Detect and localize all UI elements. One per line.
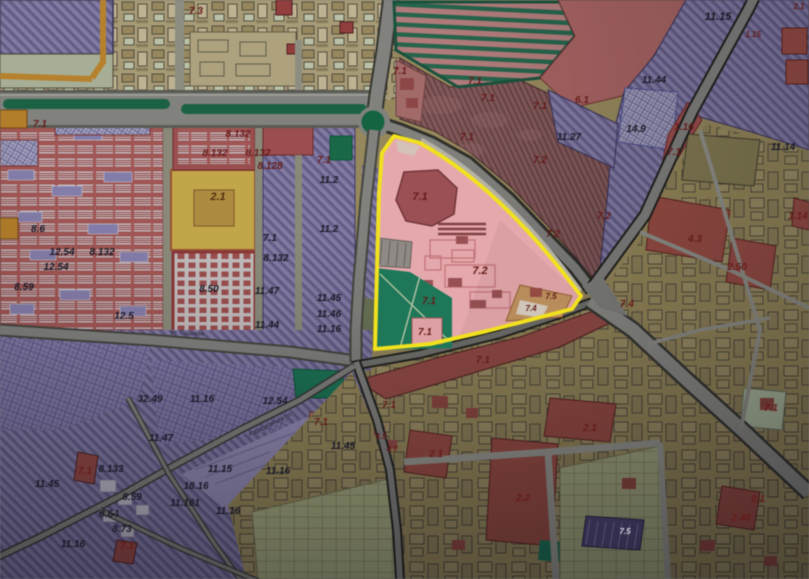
svg-text:11.161: 11.161 — [170, 498, 200, 509]
svg-text:7.1: 7.1 — [314, 417, 328, 428]
svg-text:7.1: 7.1 — [476, 355, 490, 366]
svg-text:7.2: 7.2 — [597, 211, 611, 222]
svg-text:11.45: 11.45 — [317, 293, 342, 304]
svg-text:2.2: 2.2 — [515, 493, 530, 504]
svg-text:7.1: 7.1 — [764, 403, 778, 414]
svg-text:7.2: 7.2 — [546, 229, 560, 240]
svg-text:8.50: 8.50 — [199, 284, 219, 295]
svg-text:7.1: 7.1 — [418, 327, 432, 338]
svg-text:12.54: 12.54 — [262, 396, 287, 407]
svg-text:18.16: 18.16 — [183, 481, 208, 492]
svg-text:11.44: 11.44 — [255, 320, 280, 331]
svg-text:2.1: 2.1 — [428, 449, 443, 460]
svg-text:11.46: 11.46 — [317, 309, 342, 320]
svg-text:12.54: 12.54 — [49, 247, 74, 258]
svg-text:14.9: 14.9 — [626, 124, 646, 135]
svg-text:8.132: 8.132 — [245, 148, 270, 159]
svg-text:7.2: 7.2 — [533, 155, 547, 166]
svg-text:8.132: 8.132 — [225, 129, 250, 140]
svg-text:2.1: 2.1 — [792, 2, 805, 11]
svg-text:8.59: 8.59 — [122, 492, 142, 503]
svg-text:7.1: 7.1 — [263, 233, 277, 244]
svg-text:4.3: 4.3 — [687, 234, 702, 245]
svg-text:7.1: 7.1 — [422, 296, 436, 307]
svg-text:32.49: 32.49 — [137, 394, 162, 405]
svg-text:2.1: 2.1 — [750, 494, 765, 505]
svg-text:7.1: 7.1 — [460, 132, 474, 143]
svg-text:1.14: 1.14 — [788, 211, 808, 222]
svg-text:11.16: 11.16 — [317, 324, 342, 335]
svg-text:2.50: 2.50 — [726, 262, 747, 273]
svg-text:2.1: 2.1 — [209, 191, 225, 203]
svg-text:7.1: 7.1 — [78, 466, 92, 477]
svg-text:4.7: 4.7 — [385, 445, 398, 454]
svg-text:8.132: 8.132 — [263, 253, 288, 264]
svg-text:2.1: 2.1 — [582, 423, 597, 434]
svg-text:7.1: 7.1 — [33, 119, 47, 130]
svg-text:8.128: 8.128 — [257, 161, 282, 172]
svg-text:2.40: 2.40 — [730, 513, 751, 524]
svg-text:11.2: 11.2 — [320, 224, 339, 235]
svg-text:11.47: 11.47 — [255, 286, 280, 297]
svg-text:12.5: 12.5 — [114, 311, 134, 322]
svg-text:8.59: 8.59 — [14, 282, 34, 293]
svg-text:11.16: 11.16 — [216, 506, 241, 517]
svg-text:7.1: 7.1 — [468, 76, 482, 87]
svg-text:11.15: 11.15 — [705, 11, 733, 23]
svg-text:8.73: 8.73 — [112, 524, 132, 535]
svg-text:1.15: 1.15 — [745, 30, 761, 39]
svg-text:11.44: 11.44 — [642, 75, 667, 86]
svg-text:8.132: 8.132 — [89, 247, 114, 258]
svg-text:7.4: 7.4 — [620, 299, 634, 310]
svg-text:12.54: 12.54 — [43, 262, 68, 273]
svg-text:7.1: 7.1 — [382, 400, 396, 411]
svg-text:11.16: 11.16 — [61, 539, 86, 550]
svg-text:7.3: 7.3 — [189, 6, 203, 17]
svg-text:11.16: 11.16 — [266, 466, 291, 477]
svg-text:7.1: 7.1 — [533, 101, 547, 112]
svg-text:7.5: 7.5 — [619, 527, 631, 536]
svg-text:7.1: 7.1 — [393, 66, 407, 77]
svg-text:8.133: 8.133 — [98, 464, 123, 475]
svg-text:11.45: 11.45 — [331, 441, 356, 452]
svg-text:7.1: 7.1 — [481, 93, 495, 104]
svg-text:11.2: 11.2 — [320, 175, 339, 186]
svg-text:7.1: 7.1 — [317, 155, 331, 166]
svg-text:11.27: 11.27 — [557, 132, 582, 143]
svg-text:8.132: 8.132 — [202, 148, 227, 159]
svg-text:8.6: 8.6 — [31, 224, 45, 235]
svg-text:11.45: 11.45 — [35, 479, 60, 490]
svg-text:7.1: 7.1 — [120, 541, 134, 552]
svg-text:7.4: 7.4 — [525, 304, 537, 313]
svg-text:1.16: 1.16 — [674, 122, 694, 133]
svg-text:7.1: 7.1 — [412, 191, 427, 203]
svg-text:7.2: 7.2 — [472, 265, 487, 277]
svg-text:4.5: 4.5 — [374, 432, 387, 441]
svg-text:7.5: 7.5 — [545, 292, 557, 301]
svg-text:11.14: 11.14 — [771, 142, 796, 153]
svg-text:11.15: 11.15 — [208, 464, 233, 475]
svg-text:11.16: 11.16 — [190, 394, 215, 405]
svg-text:8.64: 8.64 — [99, 509, 119, 520]
svg-text:6.1: 6.1 — [575, 95, 589, 106]
svg-text:11.47: 11.47 — [149, 433, 174, 444]
svg-text:7.1: 7.1 — [667, 147, 681, 158]
